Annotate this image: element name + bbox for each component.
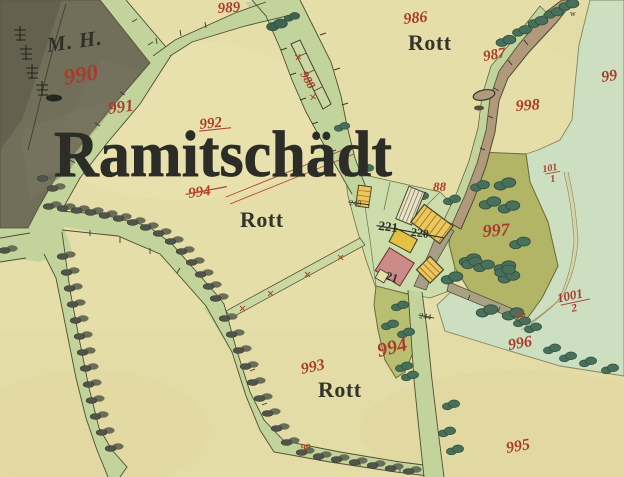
svg-text:99: 99 (300, 442, 311, 454)
svg-text:w: w (570, 9, 576, 18)
svg-text:Rott: Rott (408, 30, 452, 55)
svg-text:997: 997 (482, 219, 511, 241)
svg-text:Rott: Rott (318, 377, 362, 402)
svg-text:991: 991 (107, 96, 135, 118)
svg-text:989: 989 (217, 0, 241, 17)
svg-text:986: 986 (403, 9, 429, 28)
svg-text:994: 994 (187, 183, 212, 202)
svg-text:Rott: Rott (240, 207, 284, 232)
svg-text:998: 998 (515, 96, 540, 115)
svg-text:88: 88 (433, 179, 447, 194)
svg-text:99: 99 (600, 67, 618, 86)
